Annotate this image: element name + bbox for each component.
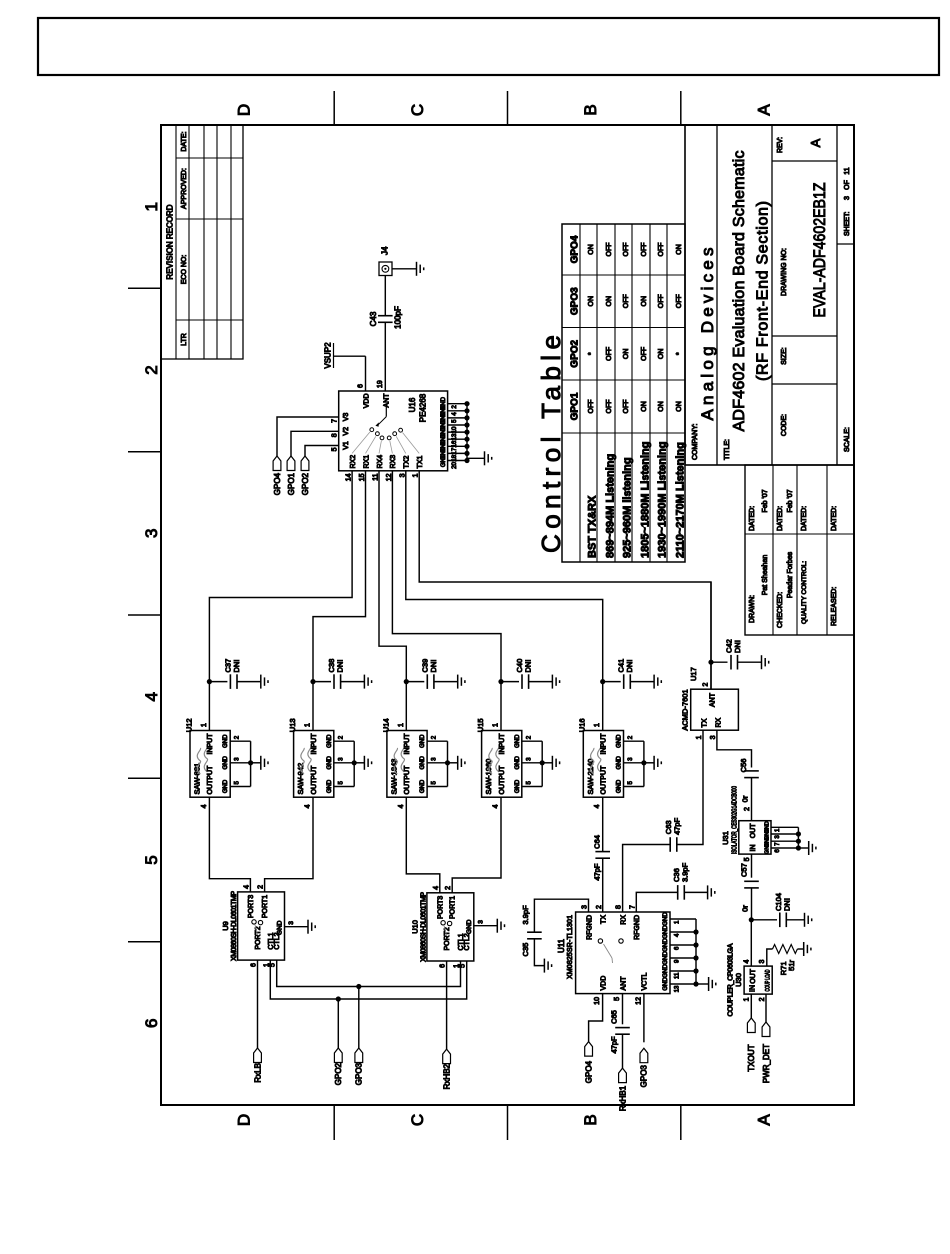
- svg-text:1: 1: [493, 723, 500, 727]
- svg-text:GND: GND: [663, 977, 669, 991]
- svg-text:GND: GND: [663, 951, 669, 965]
- svg-text:6: 6: [251, 963, 258, 967]
- svg-text:U14: U14: [381, 718, 390, 732]
- svg-text:47pF: 47pF: [673, 817, 682, 835]
- svg-text:CODE:: CODE:: [781, 414, 788, 436]
- svg-text:4: 4: [674, 933, 681, 937]
- svg-text:8: 8: [332, 433, 339, 437]
- svg-text:GPO2: GPO2: [334, 1062, 343, 1085]
- svg-text:1: 1: [398, 723, 405, 727]
- svg-text:XM0860SH-DL0601TMP: XM0860SH-DL0601TMP: [231, 891, 238, 961]
- svg-text:1805~1880M Listening: 1805~1880M Listening: [640, 442, 652, 558]
- svg-text:3: 3: [234, 757, 241, 761]
- svg-text:OUT: OUT: [750, 823, 757, 839]
- svg-text:3: 3: [477, 920, 484, 924]
- svg-text:A: A: [754, 1114, 773, 1126]
- svg-text:OFF: OFF: [606, 347, 613, 361]
- svg-text:5: 5: [142, 855, 161, 864]
- svg-text:DNI: DNI: [524, 660, 533, 673]
- svg-text:ON: ON: [676, 401, 683, 412]
- svg-text:10: 10: [594, 997, 601, 1005]
- svg-text:1: 1: [744, 997, 751, 1001]
- svg-text:6: 6: [142, 1019, 161, 1028]
- svg-text:ADF4602 Evaluation Board Schem: ADF4602 Evaluation Board Schematic: [731, 151, 748, 432]
- svg-text:B: B: [581, 1114, 600, 1125]
- svg-text:D: D: [235, 1114, 254, 1126]
- svg-text:DATE:: DATE:: [181, 131, 188, 151]
- svg-text:OFF: OFF: [623, 243, 630, 257]
- svg-text:GND: GND: [663, 925, 669, 939]
- svg-text:2: 2: [525, 735, 532, 739]
- svg-text:ANT: ANT: [710, 692, 717, 707]
- svg-text:GND: GND: [223, 734, 229, 748]
- svg-text:2: 2: [759, 997, 766, 1001]
- svg-text:ECO NO:: ECO NO:: [181, 255, 188, 285]
- svg-text:OUTPUT: OUTPUT: [601, 765, 608, 795]
- svg-text:U13: U13: [288, 718, 297, 732]
- svg-text:51r: 51r: [787, 960, 796, 971]
- svg-text:3: 3: [774, 835, 781, 839]
- svg-text:GPO4: GPO4: [570, 235, 581, 263]
- svg-text:GPO2: GPO2: [570, 339, 581, 367]
- svg-text:925~960M listening: 925~960M listening: [622, 457, 634, 558]
- svg-text:13: 13: [674, 985, 681, 992]
- svg-text:GPO3: GPO3: [640, 1065, 649, 1088]
- svg-text:C43: C43: [369, 311, 378, 326]
- svg-text:47pF: 47pF: [610, 1036, 619, 1054]
- svg-text:GND: GND: [617, 779, 623, 793]
- svg-text:RX1: RX1: [363, 455, 370, 469]
- svg-text:ON: ON: [658, 349, 665, 360]
- svg-text:OFF: OFF: [623, 294, 630, 308]
- svg-text:3.9pF: 3.9pF: [681, 862, 690, 882]
- svg-text:RxHB1: RxHB1: [618, 1085, 627, 1111]
- svg-text:1: 1: [305, 723, 312, 727]
- svg-text:9: 9: [674, 959, 681, 963]
- svg-text:GND: GND: [420, 779, 426, 793]
- svg-text:U16: U16: [578, 718, 587, 732]
- svg-text:4: 4: [305, 804, 312, 808]
- svg-text:4: 4: [142, 692, 161, 701]
- svg-text:TXOUT: TXOUT: [747, 1044, 756, 1071]
- svg-text:OFF: OFF: [606, 243, 613, 257]
- svg-text:TX2: TX2: [404, 456, 411, 469]
- svg-text:5: 5: [234, 781, 241, 785]
- svg-text:Feb '07: Feb '07: [787, 489, 794, 512]
- svg-text:C56: C56: [739, 759, 748, 773]
- svg-text:GND: GND: [327, 734, 333, 748]
- svg-text:REV:: REV:: [777, 137, 784, 153]
- svg-text:3: 3: [142, 529, 161, 538]
- svg-text:INPUT: INPUT: [404, 733, 411, 755]
- svg-text:4: 4: [493, 804, 500, 808]
- svg-text:3: 3: [582, 905, 589, 909]
- svg-text:V2: V2: [343, 427, 350, 436]
- svg-text:2110~2170M Listening: 2110~2170M Listening: [675, 442, 687, 558]
- svg-text:SCALE:: SCALE:: [844, 427, 851, 452]
- svg-text:PWR_DET: PWR_DET: [762, 1044, 771, 1083]
- svg-text:INPUT: INPUT: [311, 733, 318, 755]
- svg-text:OFF: OFF: [606, 400, 613, 414]
- svg-text:PORT3: PORT3: [437, 896, 444, 919]
- svg-text:A: A: [754, 104, 773, 116]
- svg-text:47pF: 47pF: [593, 863, 602, 881]
- svg-text:GPO4: GPO4: [584, 1060, 593, 1083]
- svg-text:1: 1: [774, 828, 781, 832]
- svg-text:GPO2: GPO2: [301, 472, 310, 495]
- svg-text:GND: GND: [466, 919, 473, 934]
- svg-text:GND: GND: [663, 964, 669, 978]
- svg-text:4: 4: [243, 885, 250, 889]
- svg-text:U15: U15: [476, 718, 485, 732]
- svg-text:J4: J4: [381, 246, 390, 255]
- svg-text:GND: GND: [617, 755, 623, 769]
- svg-text:GPO1: GPO1: [287, 472, 296, 495]
- svg-text:BST TX&RX: BST TX&RX: [587, 495, 599, 558]
- svg-text:6: 6: [674, 946, 681, 950]
- svg-text:OFF: OFF: [641, 347, 648, 361]
- svg-text:IN: IN: [750, 845, 757, 852]
- svg-text:6: 6: [440, 964, 447, 968]
- svg-text:DNI: DNI: [625, 660, 634, 673]
- svg-text:4: 4: [433, 886, 440, 890]
- svg-text:3: 3: [759, 960, 766, 964]
- svg-text:PORT1: PORT1: [450, 896, 457, 919]
- svg-text:12: 12: [636, 997, 643, 1005]
- svg-text:2: 2: [445, 886, 452, 890]
- svg-text:GND: GND: [420, 755, 426, 769]
- svg-text:DRAWN:: DRAWN:: [749, 595, 756, 623]
- svg-text:C57: C57: [740, 863, 749, 877]
- svg-text:OFF: OFF: [641, 243, 648, 257]
- svg-text:6: 6: [358, 384, 365, 388]
- svg-text:A: A: [808, 138, 823, 147]
- svg-text:(RF Front-End Section): (RF Front-End Section): [755, 201, 772, 381]
- svg-text:5: 5: [525, 781, 532, 785]
- svg-text:2: 2: [142, 365, 161, 374]
- svg-text:5: 5: [614, 997, 621, 1001]
- svg-text:5: 5: [337, 781, 344, 785]
- svg-text:EVAL-ADF4602EB1Z: EVAL-ADF4602EB1Z: [810, 183, 829, 318]
- svg-text:GND: GND: [515, 755, 521, 769]
- svg-text:5: 5: [431, 781, 438, 785]
- svg-text:TX: TX: [702, 718, 709, 727]
- svg-text:PORT3: PORT3: [248, 895, 255, 918]
- svg-text:U10: U10: [410, 920, 419, 934]
- svg-text:GND: GND: [663, 912, 669, 926]
- svg-text:VSUP2: VSUP2: [324, 342, 333, 369]
- svg-text:SHEET:: SHEET:: [844, 211, 851, 236]
- svg-text:U30: U30: [734, 973, 743, 987]
- svg-text:RX4: RX4: [377, 455, 384, 469]
- svg-text:1: 1: [696, 735, 703, 739]
- svg-text:DATED:: DATED:: [749, 506, 756, 531]
- svg-text:PE4268: PE4268: [419, 393, 428, 422]
- svg-text:DNI: DNI: [733, 640, 742, 653]
- svg-text:6: 6: [774, 849, 781, 853]
- svg-text:C35: C35: [521, 943, 530, 957]
- svg-text:OUTPUT: OUTPUT: [311, 765, 318, 795]
- svg-text:DNI: DNI: [429, 660, 438, 673]
- svg-text:3: 3: [627, 757, 634, 761]
- svg-text:2: 2: [744, 807, 751, 811]
- svg-text:PORT1: PORT1: [262, 895, 269, 918]
- svg-text:RX3: RX3: [390, 455, 397, 469]
- svg-text:DNI: DNI: [783, 898, 792, 911]
- svg-text:*: *: [676, 352, 683, 355]
- svg-text:GPO3: GPO3: [570, 287, 581, 315]
- svg-text:5: 5: [451, 419, 458, 423]
- svg-text:100pF: 100pF: [394, 306, 403, 329]
- svg-text:ON: ON: [641, 296, 648, 307]
- svg-text:RxHB2: RxHB2: [442, 1063, 451, 1089]
- svg-text:GND: GND: [663, 938, 669, 952]
- svg-text:GND: GND: [765, 842, 771, 854]
- svg-text:DATED:: DATED:: [777, 506, 784, 531]
- svg-text:C: C: [408, 1114, 427, 1126]
- svg-text:DNI: DNI: [232, 660, 241, 673]
- svg-text:U11: U11: [557, 938, 566, 953]
- svg-text:OFF: OFF: [658, 294, 665, 308]
- svg-text:GND: GND: [515, 734, 521, 748]
- svg-text:869~894M Listening: 869~894M Listening: [605, 454, 617, 558]
- svg-text:5: 5: [627, 781, 634, 785]
- svg-text:DATED:: DATED:: [831, 506, 838, 531]
- svg-text:7: 7: [332, 419, 339, 423]
- svg-text:U9: U9: [221, 921, 230, 931]
- svg-text:VDD: VDD: [600, 976, 607, 991]
- svg-text:APPROVED:: APPROVED:: [181, 168, 188, 209]
- svg-text:GPO4: GPO4: [273, 472, 282, 495]
- svg-text:U17: U17: [689, 667, 698, 681]
- svg-text:U16: U16: [408, 397, 417, 412]
- svg-text:11: 11: [844, 167, 851, 174]
- svg-text:ON: ON: [676, 244, 683, 255]
- svg-text:8: 8: [616, 905, 623, 909]
- svg-text:OFF: OFF: [658, 243, 665, 257]
- svg-text:GND: GND: [420, 734, 426, 748]
- svg-text:GPO3: GPO3: [355, 1062, 364, 1085]
- svg-text:3: 3: [337, 757, 344, 761]
- svg-text:OFF: OFF: [676, 294, 683, 308]
- svg-text:GND: GND: [515, 779, 521, 793]
- svg-text:V1: V1: [343, 441, 350, 450]
- svg-text:3: 3: [710, 735, 717, 739]
- svg-text:IN: IN: [750, 985, 757, 992]
- svg-text:ON: ON: [588, 244, 595, 255]
- svg-text:OUTPUT: OUTPUT: [404, 765, 411, 795]
- svg-text:2: 2: [337, 735, 344, 739]
- svg-text:0r: 0r: [741, 795, 750, 802]
- svg-text:INPUT: INPUT: [499, 733, 506, 755]
- svg-text:REVISION RECORD: REVISION RECORD: [166, 204, 175, 279]
- svg-text:DATED:: DATED:: [801, 506, 808, 531]
- svg-text:ANT: ANT: [383, 393, 390, 408]
- svg-text:2: 2: [627, 735, 634, 739]
- svg-text:GND: GND: [223, 755, 229, 769]
- svg-text:RX: RX: [715, 717, 722, 727]
- svg-text:INPUT: INPUT: [207, 733, 214, 755]
- svg-text:TX: TX: [601, 915, 608, 924]
- svg-text:GND: GND: [277, 920, 284, 935]
- svg-text:Pat Sheahan: Pat Sheahan: [762, 555, 769, 596]
- svg-text:VDD: VDD: [363, 394, 370, 409]
- svg-text:3: 3: [288, 921, 295, 925]
- svg-text:COMPANY:: COMPANY:: [692, 424, 699, 460]
- svg-text:LTR: LTR: [181, 333, 188, 346]
- svg-text:GND: GND: [327, 755, 333, 769]
- svg-text:11: 11: [674, 972, 681, 979]
- svg-text:19: 19: [377, 380, 384, 388]
- svg-text:0r: 0r: [741, 905, 750, 912]
- svg-text:RFGND: RFGND: [634, 915, 641, 940]
- svg-text:4: 4: [398, 804, 405, 808]
- svg-text:RELEASED:: RELEASED:: [831, 587, 838, 626]
- svg-text:ON: ON: [641, 401, 648, 412]
- svg-text:Peadar Forbes: Peadar Forbes: [787, 551, 794, 598]
- svg-text:OUT: OUT: [750, 968, 757, 984]
- svg-text:3: 3: [525, 757, 532, 761]
- svg-text:Feb '07: Feb '07: [762, 489, 769, 512]
- svg-text:ON: ON: [658, 401, 665, 412]
- svg-text:U31: U31: [721, 831, 730, 845]
- svg-text:2: 2: [703, 683, 710, 687]
- svg-text:5: 5: [332, 447, 339, 451]
- svg-text:C: C: [408, 104, 427, 116]
- svg-text:RFGND: RFGND: [586, 915, 593, 940]
- svg-text:1: 1: [594, 723, 601, 727]
- svg-text:CTL2: CTL2: [464, 933, 471, 950]
- svg-text:7: 7: [629, 905, 636, 909]
- svg-text:2: 2: [451, 405, 458, 409]
- svg-text:1: 1: [201, 723, 208, 727]
- svg-text:QUALITY CONTROL:: QUALITY CONTROL:: [801, 561, 808, 624]
- svg-text:DRAWING NO:: DRAWING NO:: [781, 248, 788, 296]
- svg-text:RxLB: RxLB: [253, 1063, 262, 1083]
- svg-text:INPUT: INPUT: [601, 733, 608, 755]
- svg-text:ON: ON: [606, 296, 613, 307]
- svg-text:XM0825SR-TL1301: XM0825SR-TL1301: [567, 915, 574, 979]
- svg-text:SIZE:: SIZE:: [781, 347, 788, 365]
- svg-text:OUTPUT: OUTPUT: [499, 765, 506, 795]
- svg-text:2: 2: [431, 735, 438, 739]
- svg-text:4: 4: [451, 412, 458, 416]
- svg-text:RX2: RX2: [350, 455, 357, 469]
- svg-text:GPO1: GPO1: [570, 392, 581, 420]
- svg-text:VCTL: VCTL: [642, 973, 649, 991]
- svg-text:3.9pF: 3.9pF: [521, 905, 530, 925]
- svg-text:2: 2: [596, 905, 603, 909]
- svg-text:B: B: [581, 104, 600, 115]
- svg-text:GND: GND: [223, 779, 229, 793]
- svg-text:CHECKED:: CHECKED:: [777, 592, 784, 628]
- svg-text:1930~1990M Listening: 1930~1990M Listening: [657, 442, 669, 558]
- svg-text:1: 1: [674, 920, 681, 924]
- svg-text:4: 4: [594, 804, 601, 808]
- svg-text:ACMD-7601: ACMD-7601: [681, 689, 690, 730]
- svg-text:3: 3: [431, 757, 438, 761]
- svg-text:2: 2: [234, 735, 241, 739]
- svg-text:C64: C64: [593, 835, 602, 849]
- svg-text:GND: GND: [441, 453, 447, 467]
- svg-text:C65: C65: [610, 1010, 619, 1024]
- svg-text:GND: GND: [327, 779, 333, 793]
- svg-text:TITLE:: TITLE:: [724, 439, 731, 460]
- svg-text:RX: RX: [620, 915, 627, 925]
- svg-text:2: 2: [258, 885, 265, 889]
- svg-text:OF: OF: [844, 180, 851, 190]
- svg-text:ISOLATOR_CES302G14DCB000: ISOLATOR_CES302G14DCB000: [732, 786, 739, 854]
- svg-text:ANT: ANT: [620, 976, 627, 991]
- svg-text:ON: ON: [588, 296, 595, 307]
- svg-text:D: D: [235, 104, 254, 116]
- svg-text:U12: U12: [184, 718, 193, 732]
- svg-text:OFF: OFF: [623, 400, 630, 414]
- svg-text:DNI: DNI: [336, 660, 345, 673]
- svg-text:5: 5: [744, 857, 751, 861]
- svg-text:3: 3: [844, 196, 851, 200]
- svg-text:COUP LOAD: COUP LOAD: [766, 969, 772, 991]
- svg-text:V3: V3: [343, 413, 350, 422]
- svg-text:4: 4: [201, 804, 208, 808]
- svg-text:4: 4: [744, 960, 751, 964]
- svg-text:1: 1: [142, 202, 161, 211]
- svg-text:TX1: TX1: [417, 456, 424, 469]
- svg-text:ON: ON: [623, 349, 630, 360]
- svg-text:*: *: [588, 352, 595, 355]
- svg-text:OFF: OFF: [588, 400, 595, 414]
- svg-text:OUTPUT: OUTPUT: [207, 765, 214, 795]
- svg-text:XM0860SH-DL0601TMP: XM0860SH-DL0601TMP: [420, 892, 427, 962]
- svg-text:7: 7: [774, 842, 781, 846]
- svg-text:GND: GND: [617, 734, 623, 748]
- svg-text:20: 20: [451, 461, 458, 468]
